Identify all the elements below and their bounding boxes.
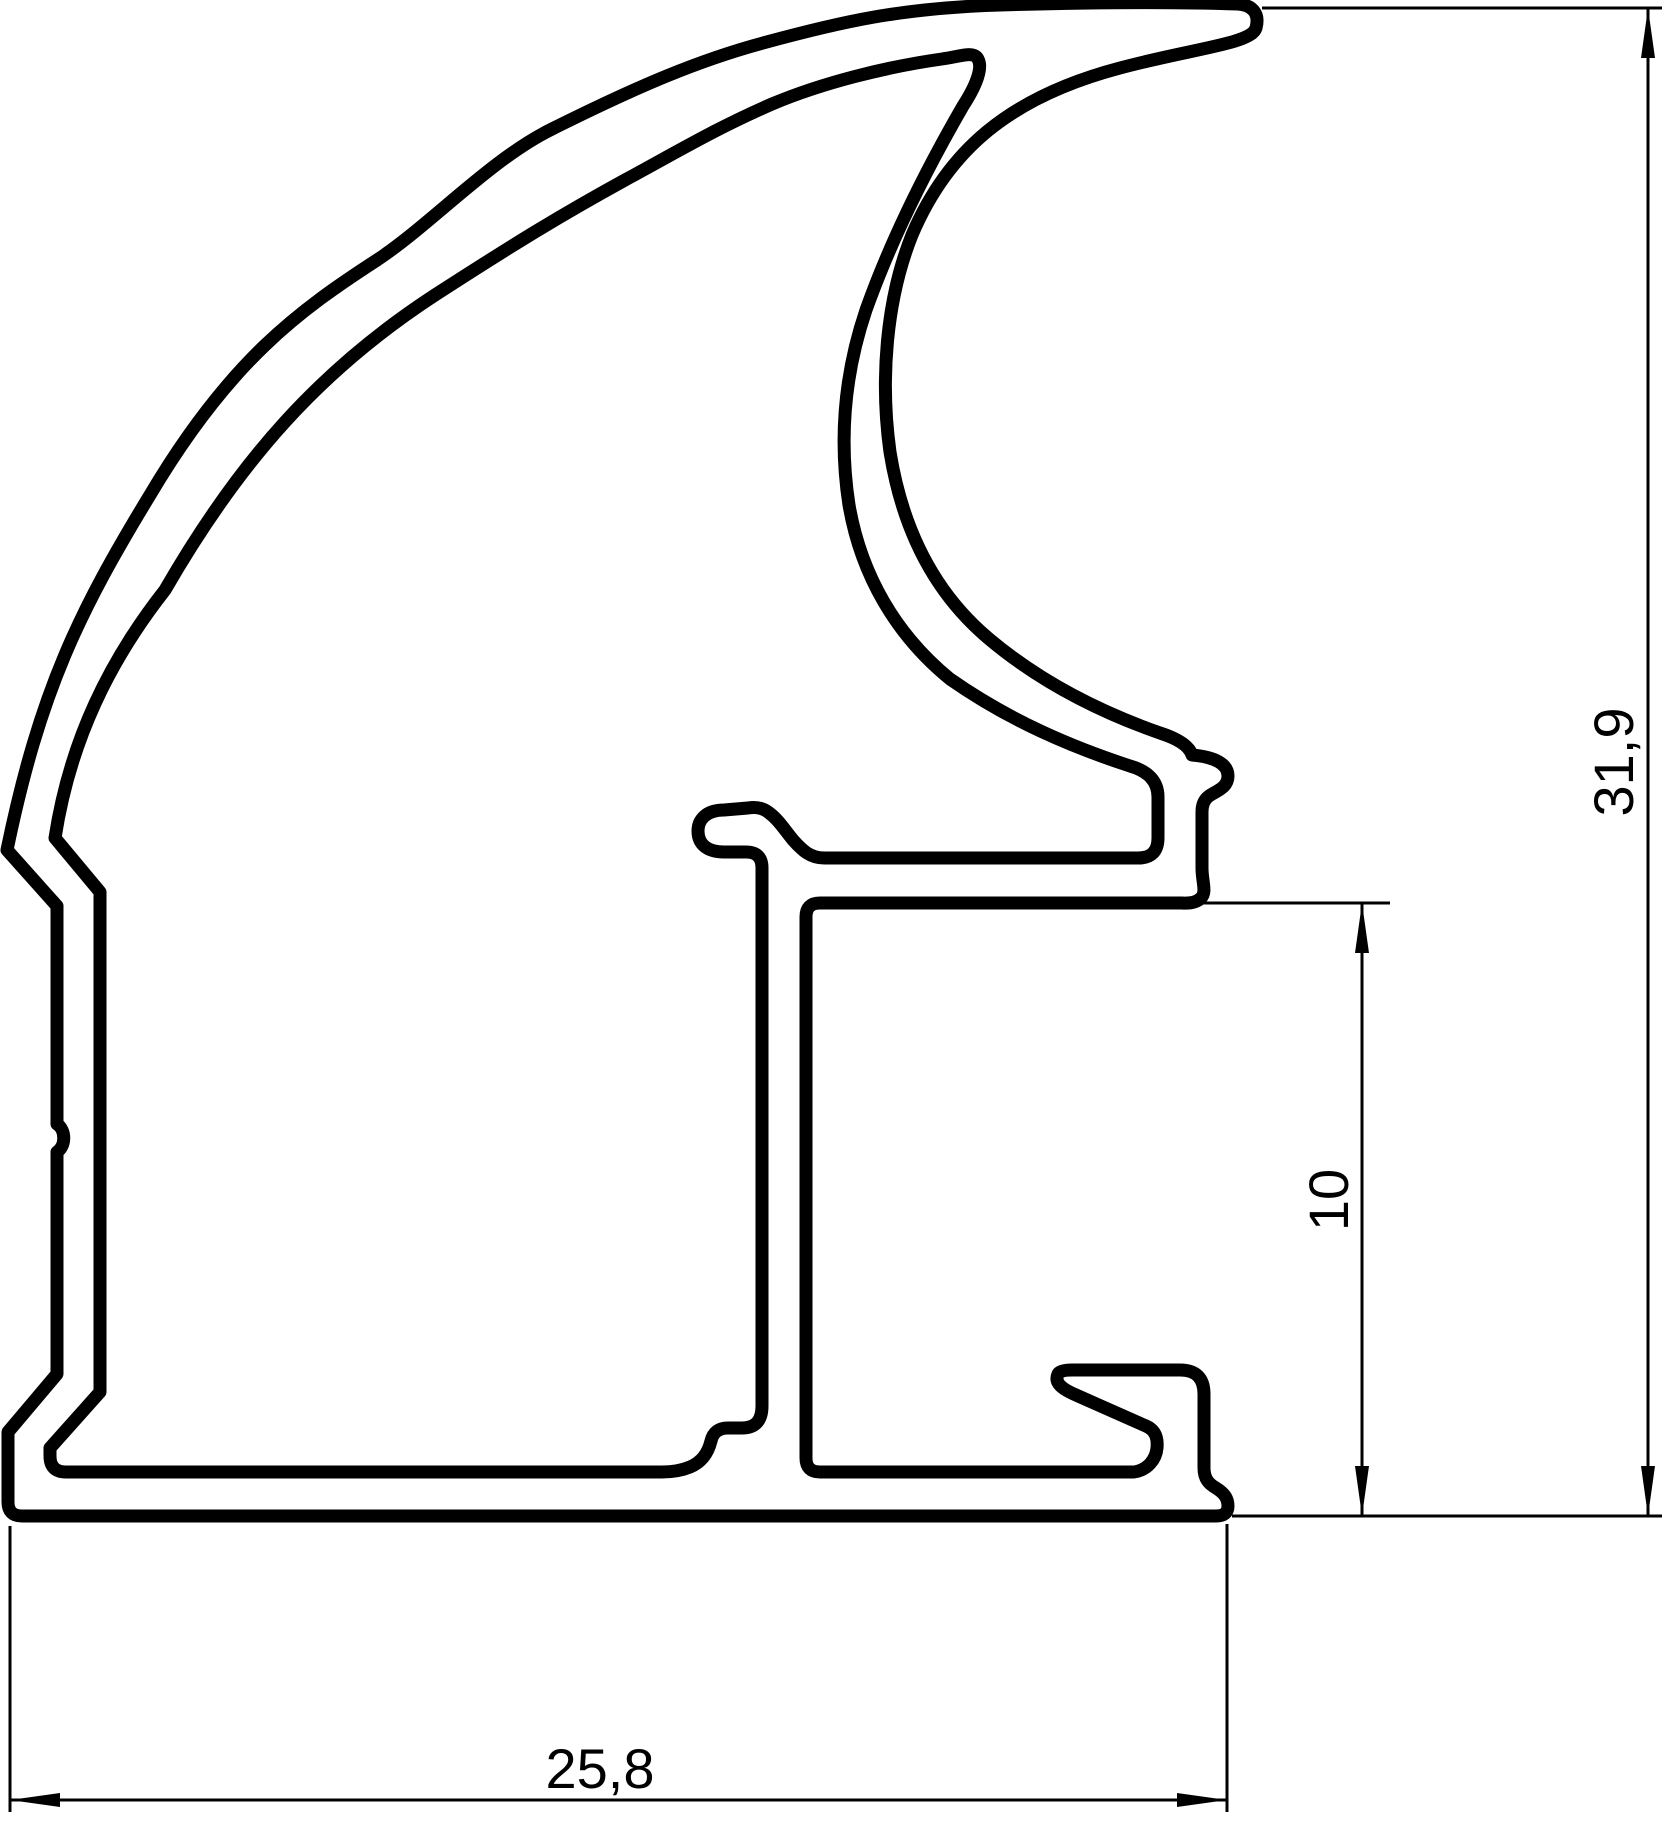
dim-overall-height-label: 31,9 xyxy=(1582,708,1645,817)
dim-slot-height-label: 10 xyxy=(1297,1169,1360,1231)
profile-drawing-svg: 31,9 10 25,8 xyxy=(0,0,1666,1822)
technical-drawing-page: 31,9 10 25,8 xyxy=(0,0,1666,1822)
arrow-up-icon xyxy=(1355,903,1369,953)
profile-inner-contour xyxy=(50,55,1158,1472)
dim-overall-width: 25,8 xyxy=(10,1524,1227,1812)
profile-outer-contour xyxy=(7,3,1257,1516)
dim-overall-height: 31,9 xyxy=(1232,8,1662,1516)
arrow-right-icon xyxy=(1177,1793,1227,1807)
dim-overall-width-label: 25,8 xyxy=(546,1737,655,1800)
arrow-down-icon xyxy=(1355,1466,1369,1516)
arrow-up-icon xyxy=(1641,8,1655,58)
arrow-down-icon xyxy=(1641,1466,1655,1516)
dim-slot-height: 10 xyxy=(1192,903,1390,1516)
arrow-left-icon xyxy=(10,1793,60,1807)
